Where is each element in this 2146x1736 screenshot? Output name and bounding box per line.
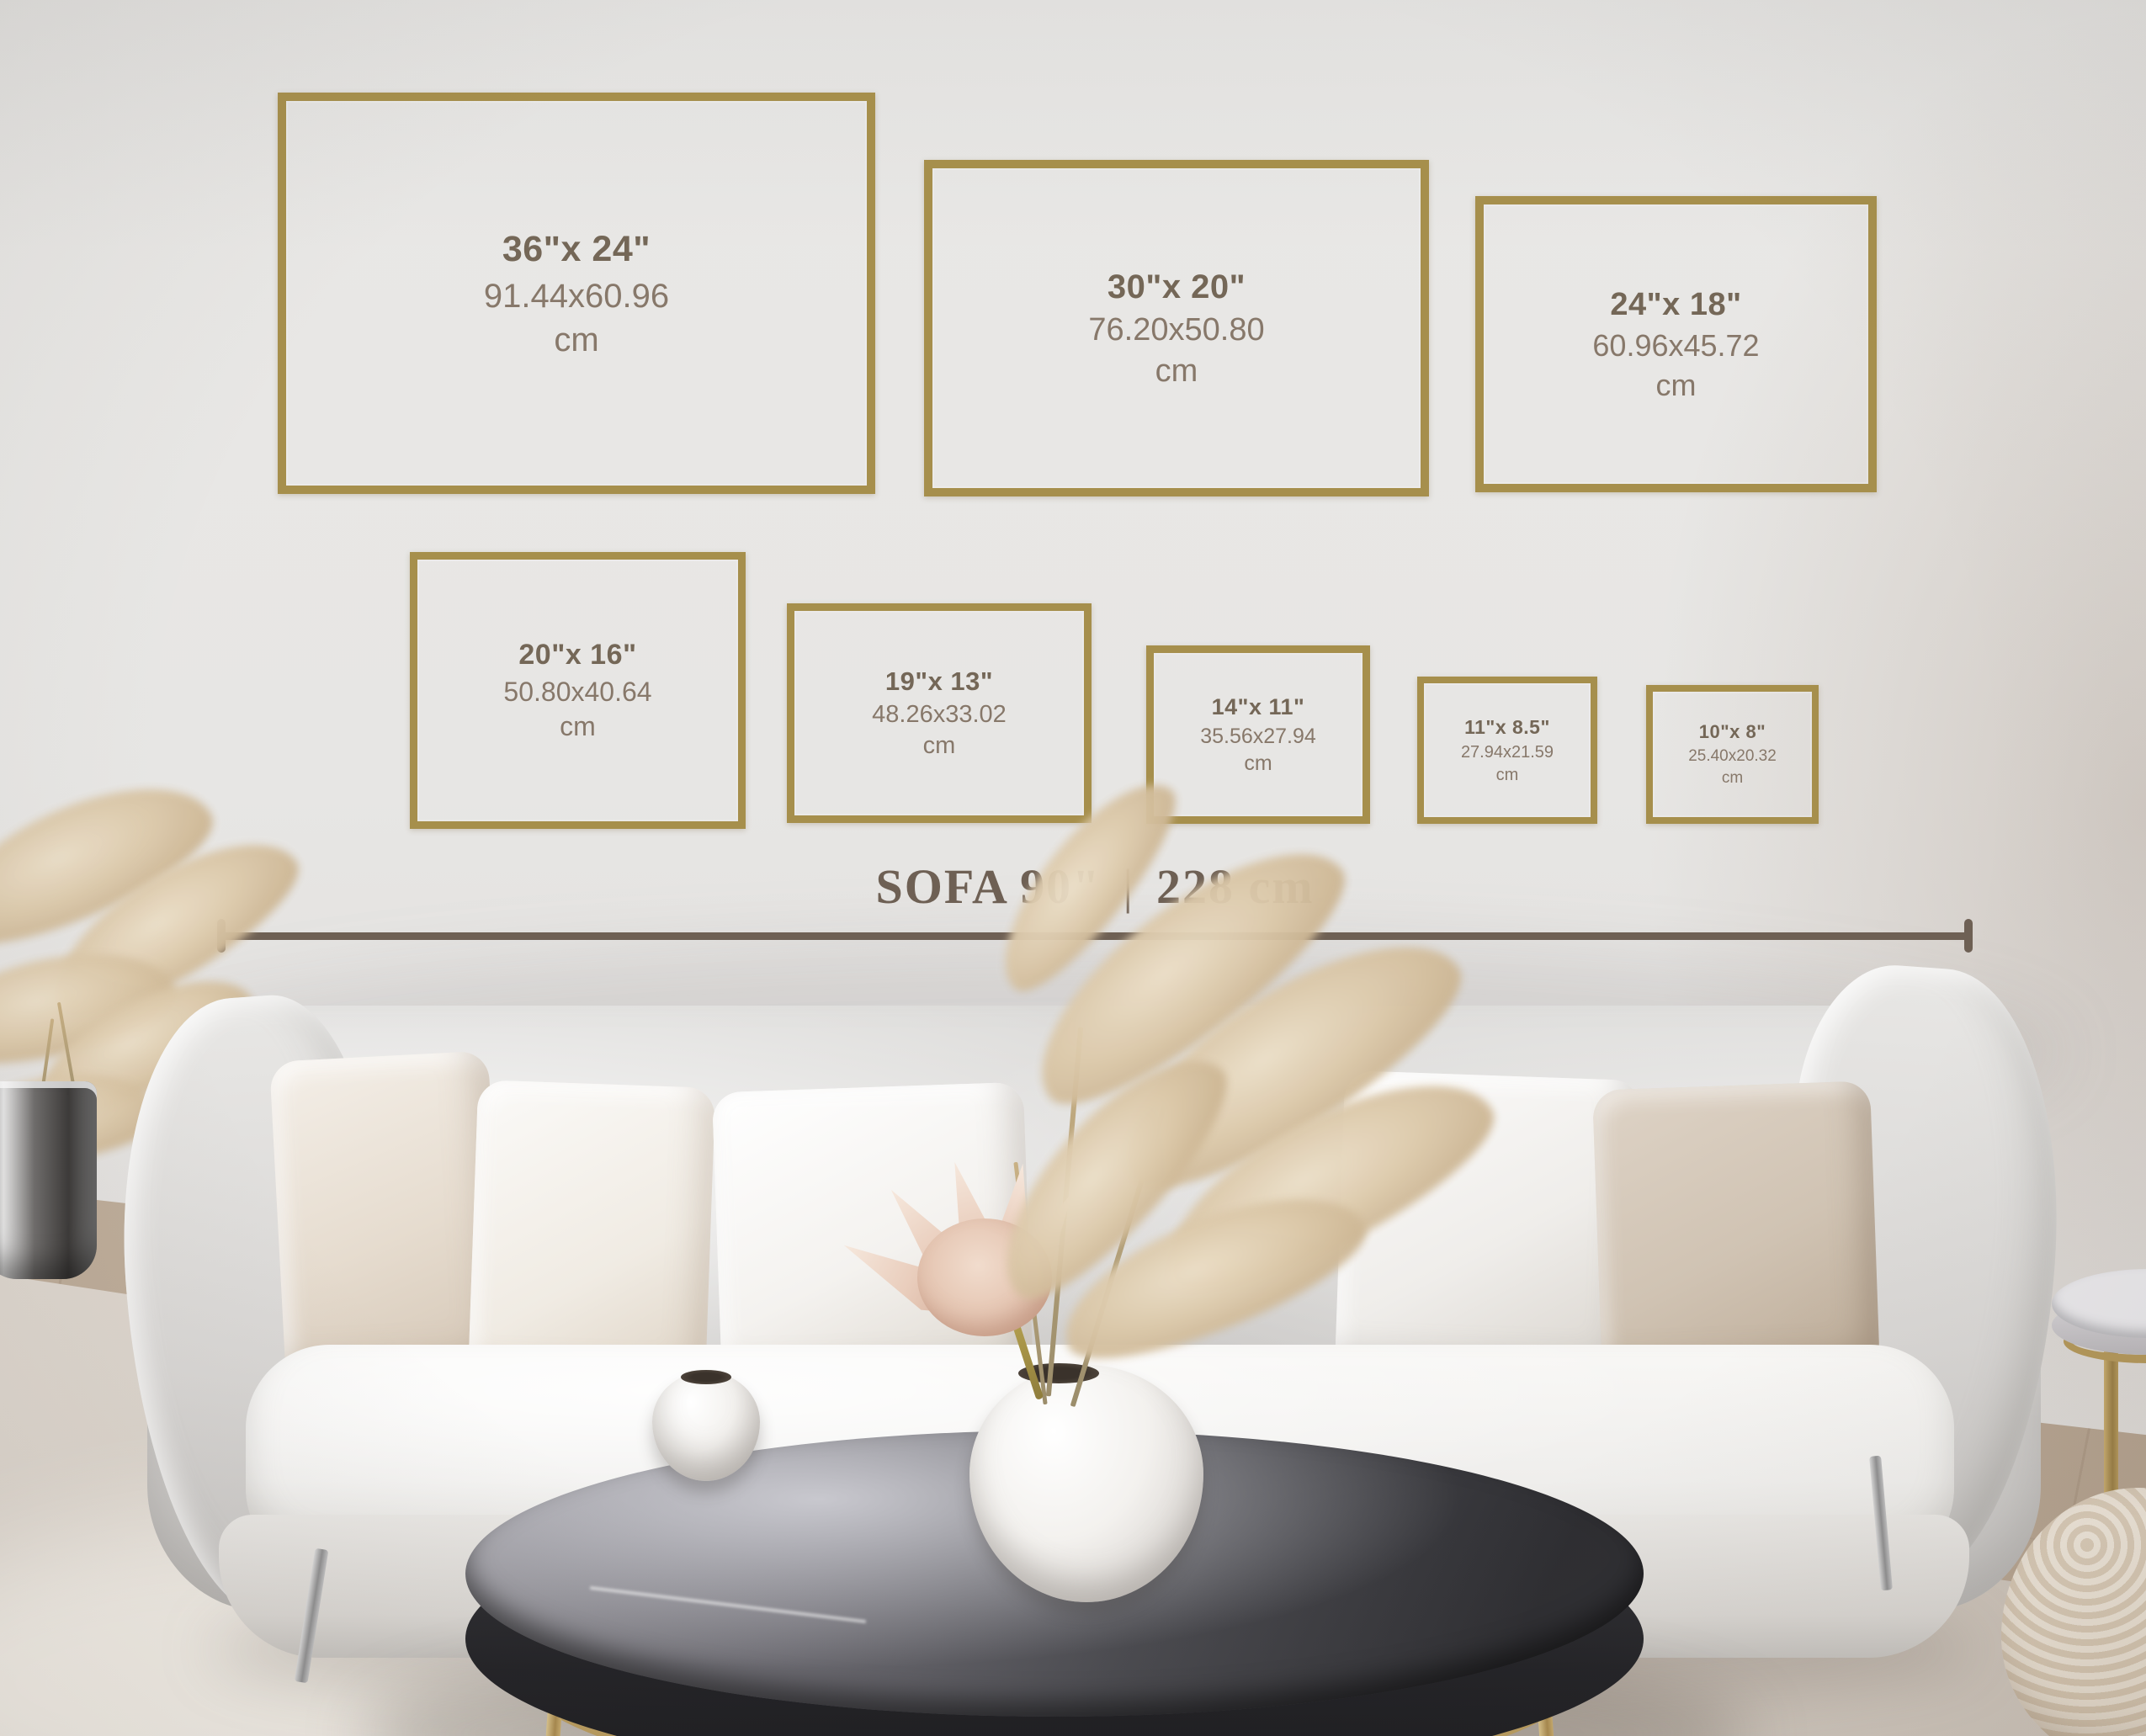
- frame-size-unit: cm: [1200, 750, 1316, 778]
- vase-mouth: [681, 1370, 731, 1384]
- frame-size-cm: 48.26x33.02: [872, 699, 1007, 731]
- frame-size-inches: 36"x 24": [484, 225, 669, 273]
- size-guide-scene: 36"x 24" 91.44x60.96 cm 30"x 20" 76.20x5…: [0, 0, 2146, 1736]
- frame-size-unit: cm: [1688, 767, 1777, 789]
- frame-36x24-label: 36"x 24" 91.44x60.96 cm: [484, 225, 669, 361]
- frame-10x8: 10"x 8" 25.40x20.32 cm: [1646, 685, 1819, 824]
- frame-size-cm: 27.94x21.59: [1461, 741, 1554, 764]
- frame-size-unit: cm: [1461, 764, 1554, 787]
- frame-24x18: 24"x 18" 60.96x45.72 cm: [1475, 196, 1877, 492]
- frame-size-inches: 24"x 18": [1592, 284, 1759, 326]
- frame-size-unit: cm: [484, 318, 669, 362]
- frame-size-cm: 60.96x45.72: [1592, 326, 1759, 366]
- frame-size-unit: cm: [503, 709, 651, 745]
- frame-size-inches: 11"x 8.5": [1461, 714, 1554, 741]
- frame-11x8-5: 11"x 8.5" 27.94x21.59 cm: [1417, 677, 1597, 824]
- frame-size-cm: 50.80x40.64: [503, 675, 651, 710]
- frame-24x18-label: 24"x 18" 60.96x45.72 cm: [1592, 284, 1759, 406]
- frame-14x11: 14"x 11" 35.56x27.94 cm: [1146, 645, 1370, 824]
- frame-10x8-label: 10"x 8" 25.40x20.32 cm: [1688, 719, 1777, 788]
- glass-vase: [0, 1081, 97, 1279]
- measure-endcap-right: [1964, 919, 1973, 953]
- frame-size-inches: 30"x 20": [1088, 264, 1264, 310]
- frame-size-unit: cm: [1592, 366, 1759, 406]
- frame-size-unit: cm: [872, 730, 1007, 762]
- frame-30x20-label: 30"x 20" 76.20x50.80 cm: [1088, 264, 1264, 393]
- frame-19x13-label: 19"x 13" 48.26x33.02 cm: [872, 664, 1007, 762]
- frame-size-inches: 14"x 11": [1200, 692, 1316, 722]
- frame-size-cm: 76.20x50.80: [1088, 310, 1264, 351]
- frame-size-inches: 20"x 16": [503, 636, 651, 675]
- frame-size-cm: 91.44x60.96: [484, 274, 669, 318]
- throw-pillow-taupe: [1592, 1080, 1880, 1380]
- frame-19x13: 19"x 13" 48.26x33.02 cm: [787, 603, 1092, 823]
- frame-size-unit: cm: [1088, 351, 1264, 392]
- frame-20x16-label: 20"x 16" 50.80x40.64 cm: [503, 636, 651, 745]
- frame-14x11-label: 14"x 11" 35.56x27.94 cm: [1200, 692, 1316, 777]
- frame-size-inches: 10"x 8": [1688, 719, 1777, 746]
- frame-36x24: 36"x 24" 91.44x60.96 cm: [278, 93, 875, 494]
- frame-30x20: 30"x 20" 76.20x50.80 cm: [924, 160, 1429, 496]
- frame-20x16: 20"x 16" 50.80x40.64 cm: [410, 552, 746, 829]
- frame-size-cm: 25.40x20.32: [1688, 746, 1777, 767]
- frame-11x8-5-label: 11"x 8.5" 27.94x21.59 cm: [1461, 714, 1554, 786]
- frame-size-inches: 19"x 13": [872, 664, 1007, 699]
- frame-size-cm: 35.56x27.94: [1200, 723, 1316, 751]
